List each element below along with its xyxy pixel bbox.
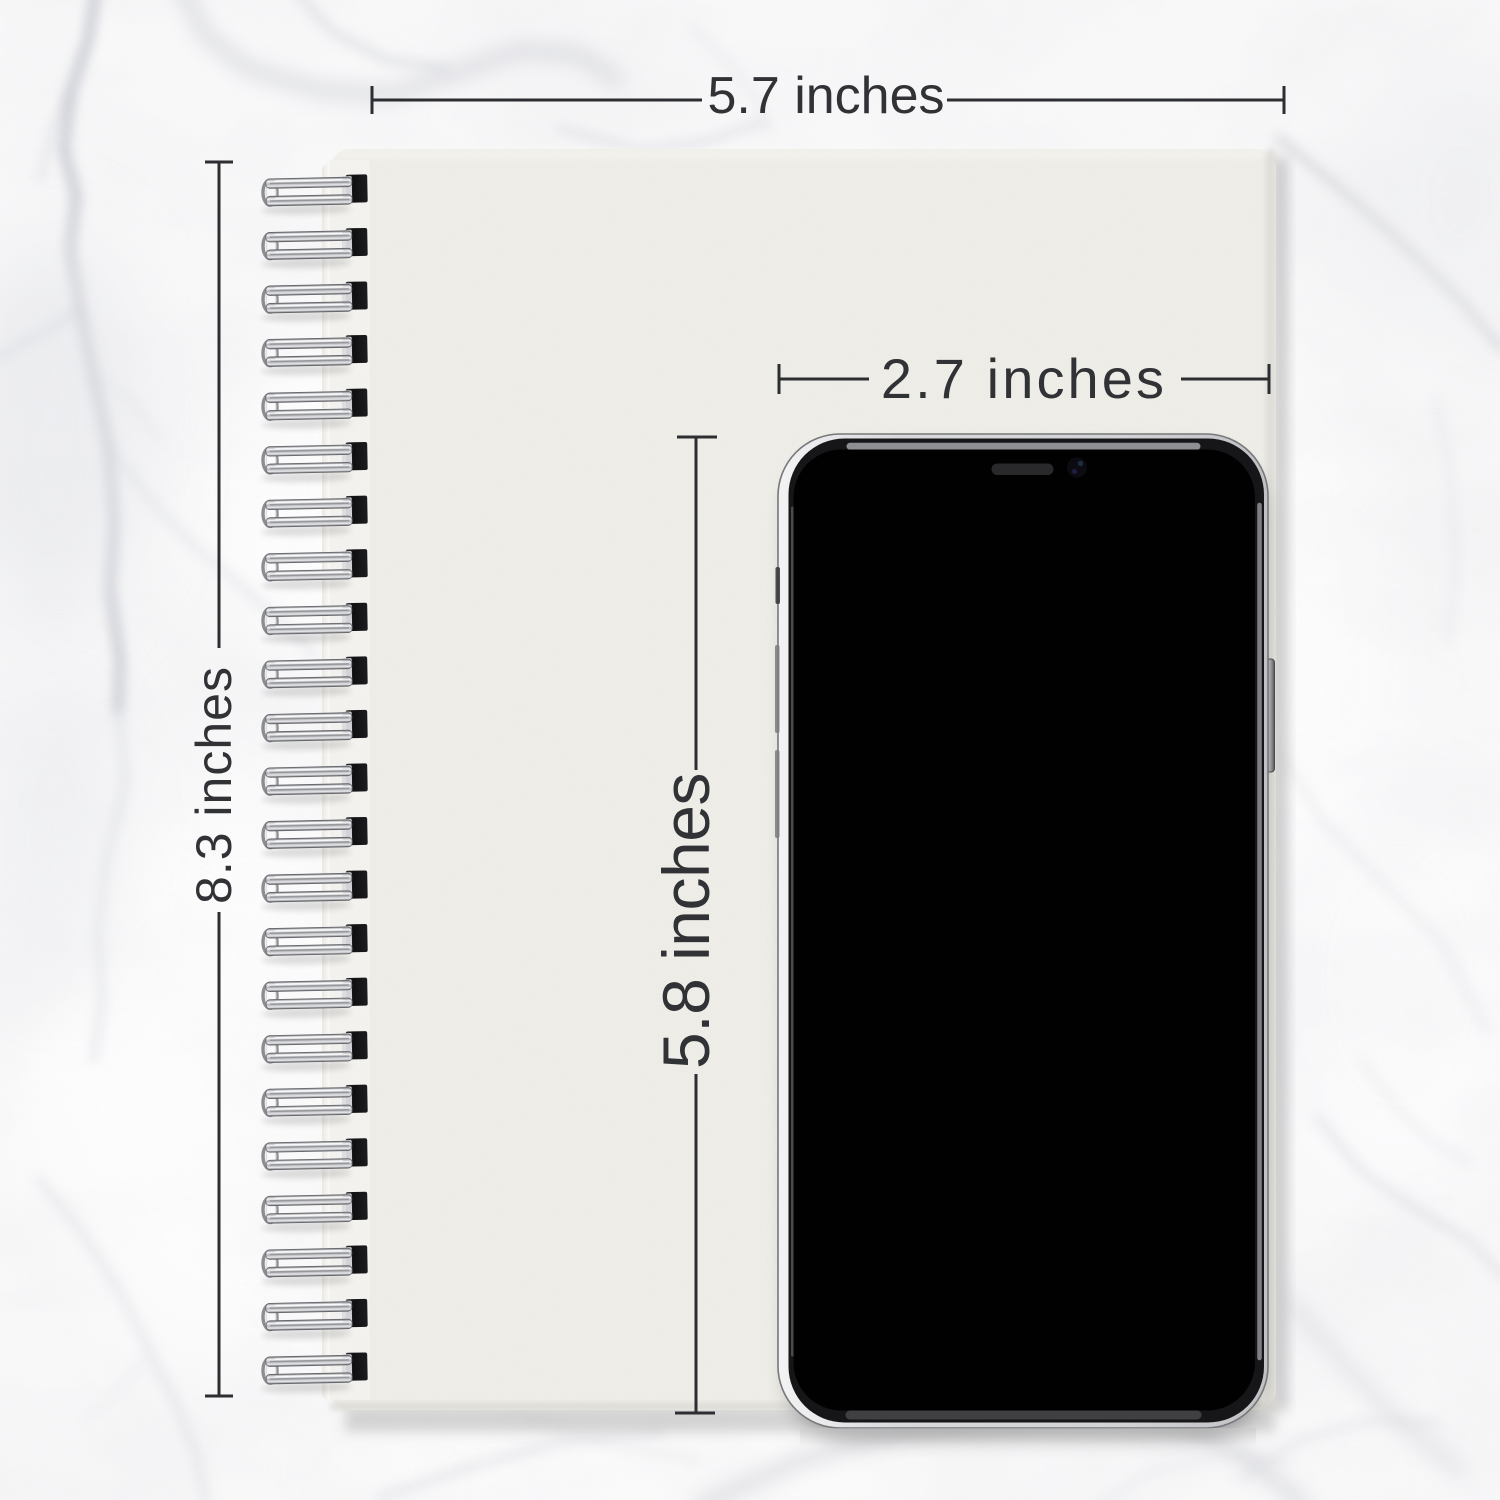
svg-text:8.3 inches: 8.3 inches: [186, 666, 242, 904]
svg-text:5.8 inches: 5.8 inches: [649, 773, 723, 1069]
svg-text:2.7 inches: 2.7 inches: [881, 347, 1167, 410]
svg-text:5.7 inches: 5.7 inches: [707, 67, 944, 125]
